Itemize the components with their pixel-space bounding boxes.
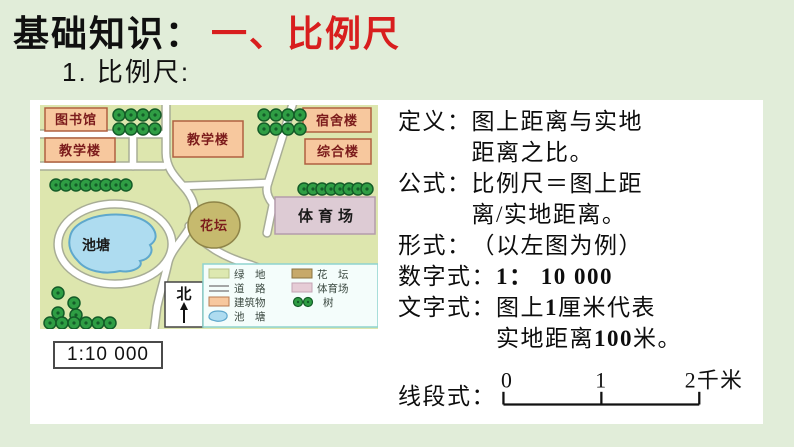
def-line-number: 100 (594, 326, 633, 351)
flowerbed-label: 花坛 (200, 218, 228, 233)
def-line-part: 图上 (496, 295, 545, 320)
legend-label-road: 道 路 (234, 282, 266, 295)
def-line: 距离之比。 (472, 140, 595, 165)
title-highlight: 一、比例尺 (211, 13, 401, 54)
content-panel: 池塘 花坛 体育场 图书馆 教学楼 教学楼 宿舍楼 (30, 100, 763, 424)
legend-label-tree: 树 (323, 296, 334, 309)
def-line: 离/实地距离。 (472, 202, 627, 227)
campus-map: 池塘 花坛 体育场 图书馆 教学楼 教学楼 宿舍楼 (40, 105, 378, 329)
map-building-teaching-center: 教学楼 (173, 121, 243, 157)
scale-tick-label-1: 1 (595, 368, 607, 392)
map-legend: 绿 地 道 路 建筑物 池 塘 花 坛 体育场 树 (203, 264, 378, 327)
def-label: 定义： (398, 106, 472, 168)
legend-label-stadium: 体育场 (317, 282, 349, 295)
scale-tick-label-0: 0 (501, 368, 513, 392)
map-stadium: 体育场 (275, 197, 375, 234)
def-label: 文字式： (398, 292, 496, 354)
teaching-center-label: 教学楼 (186, 132, 229, 147)
def-label: 线段式： (398, 381, 496, 412)
subtitle: 1. 比例尺: (62, 52, 190, 89)
map-building-library: 图书馆 (45, 108, 107, 131)
map-scale-text: 1:10 000 (67, 344, 149, 366)
pond-label: 池塘 (82, 237, 110, 254)
formula-row: 公式： 比例尺＝图上距 离/实地距离。 (398, 168, 770, 230)
library-label: 图书馆 (55, 112, 97, 127)
dorm-label: 宿舍楼 (316, 113, 358, 128)
map-scale-box: 1:10 000 (53, 341, 163, 369)
def-line-part: 米。 (633, 326, 682, 351)
legend-label-green: 绿 地 (234, 268, 266, 281)
trees-row-left (50, 179, 132, 191)
def-line-part: 实地距离 (496, 326, 594, 351)
stadium-label: 体育场 (298, 207, 358, 225)
north-arrow-box: 北 (165, 282, 203, 327)
teaching-left-label: 教学楼 (58, 143, 101, 158)
segment-scale-bar: 0 1 2千米 (498, 366, 770, 414)
def-line: （以左图为例） (472, 233, 644, 258)
def-line-part: 厘米代表 (558, 295, 656, 320)
def-line-number: 1 (545, 295, 558, 320)
legend-swatch-pond (209, 311, 227, 321)
map-building-dorm: 宿舍楼 (303, 108, 371, 132)
title-prefix: 基础知识： (13, 13, 203, 54)
legend-swatch-flowerbed (292, 269, 312, 278)
legend-label-building: 建筑物 (234, 296, 266, 309)
map-building-teaching-left: 教学楼 (45, 138, 115, 162)
def-label: 公式： (398, 168, 472, 230)
map-flowerbed: 花坛 (188, 202, 240, 248)
numeric-form-row: 数字式： 1： 10 000 (398, 261, 770, 292)
def-line: 图上距离与实地 (472, 109, 644, 134)
form-row: 形式： （以左图为例） (398, 230, 770, 261)
definitions-column: 定义： 图上距离与实地 距离之比。 公式： 比例尺＝图上距 离/实地距离。 形式… (398, 106, 770, 412)
numeric-scale-value: 1： 10 000 (496, 261, 770, 292)
page-title: 基础知识：一、比例尺 (13, 5, 401, 57)
complex-label: 综合楼 (317, 144, 359, 159)
north-label: 北 (176, 286, 191, 303)
legend-swatch-building (209, 297, 229, 306)
legend-swatch-stadium (292, 283, 312, 292)
text-form-row: 文字式： 图上1厘米代表 实地距离100米。 (398, 292, 770, 354)
map-building-complex: 综合楼 (305, 139, 371, 164)
legend-swatch-green (209, 269, 229, 278)
scale-tick-label-2: 2千米 (685, 368, 743, 392)
def-label: 数字式： (398, 261, 496, 292)
def-label: 形式： (398, 230, 472, 261)
legend-label-flowerbed: 花 坛 (317, 268, 349, 281)
segment-form-row: 线段式： 0 1 2千米 (398, 366, 770, 412)
def-line: 比例尺＝图上距 (472, 171, 644, 196)
trees-row-right (298, 183, 373, 195)
definition-row: 定义： 图上距离与实地 距离之比。 (398, 106, 770, 168)
legend-label-pond: 池 塘 (234, 310, 266, 323)
